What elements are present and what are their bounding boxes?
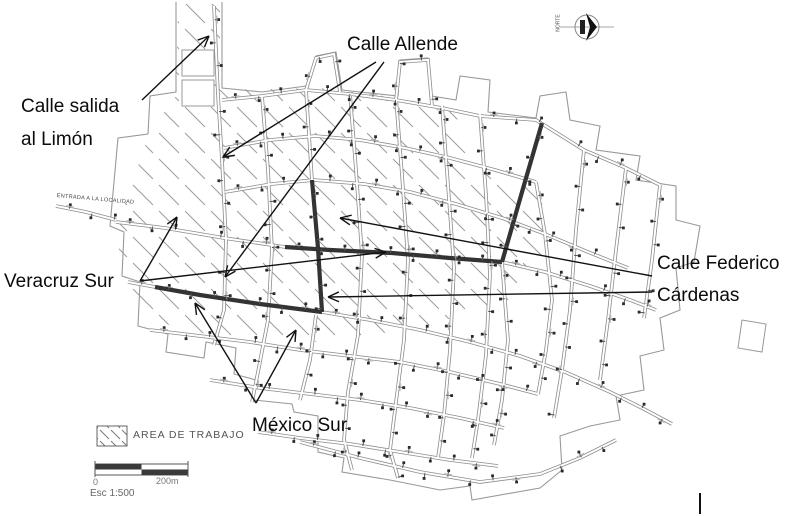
scale-bar xyxy=(95,461,188,477)
scale-distance-label: 200m xyxy=(156,476,179,486)
label-federico-line1: Calle Federico xyxy=(657,248,780,280)
label-calle-salida-line1: Calle salida xyxy=(21,90,119,123)
legend-work-area-swatch xyxy=(97,426,127,446)
label-federico-line2: Cárdenas xyxy=(657,280,780,312)
north-compass-icon xyxy=(560,13,614,41)
label-calle-federico-cardenas: Calle Federico Cárdenas xyxy=(657,248,780,312)
scale-ratio-label: Esc 1:500 xyxy=(90,488,134,499)
label-calle-allende: Calle Allende xyxy=(347,29,458,61)
figure-street-map: Calle salida al Limón Calle Allende Vera… xyxy=(0,0,808,516)
scale-zero-label: 0 xyxy=(93,477,98,487)
label-norte: NORTE xyxy=(556,14,562,31)
label-calle-salida-al-limon: Calle salida al Limón xyxy=(21,90,119,156)
label-veracruz-sur: Veracruz Sur xyxy=(4,266,114,298)
label-calle-salida-line2: al Limón xyxy=(21,123,119,156)
label-mexico-sur: México Sur xyxy=(252,410,347,442)
legend-work-area-label: AREA DE TRABAJO xyxy=(133,429,245,441)
